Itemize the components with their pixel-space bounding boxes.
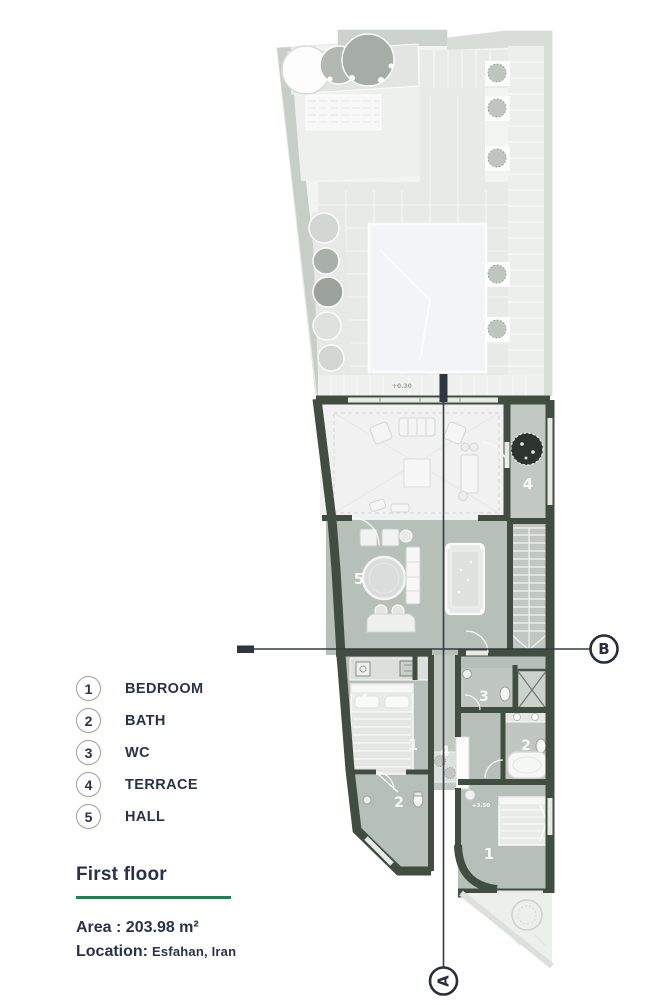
coffee-table xyxy=(404,459,430,487)
tree-icon xyxy=(309,213,339,243)
sink xyxy=(363,796,371,804)
legend-number: 4 xyxy=(76,772,101,797)
legend-item-hall: 5 HALL xyxy=(76,804,204,829)
legend-item-terrace: 4 TERRACE xyxy=(76,772,204,797)
sink xyxy=(356,662,370,676)
legend-label: BEDROOM xyxy=(125,681,204,697)
console-table xyxy=(461,455,478,493)
legend-number: 5 xyxy=(76,804,101,829)
legend-label: WC xyxy=(125,745,150,761)
floor-plan-page: +0.30 xyxy=(0,0,667,1000)
legend-label: HALL xyxy=(125,809,165,825)
legend-label: BATH xyxy=(125,713,166,729)
legend: 1 BEDROOM 2 BATH 3 WC 4 TERRACE 5 HALL xyxy=(76,676,204,829)
tree-icon xyxy=(313,248,339,274)
cabinet xyxy=(406,547,420,604)
vanity xyxy=(505,712,547,722)
kitchen-counter xyxy=(350,658,432,680)
chair xyxy=(360,529,377,546)
tree-icon xyxy=(313,277,343,307)
level-annotation: +0.30 xyxy=(392,383,412,390)
pergola-slab xyxy=(306,95,381,130)
garden-walkway: +0.30 xyxy=(318,375,544,396)
level-annotation: +3.50 xyxy=(472,803,490,809)
page-title: First floor xyxy=(76,864,236,886)
area-value: Area : 203.98 m² xyxy=(76,919,236,937)
sink xyxy=(463,670,472,679)
legend-number: 2 xyxy=(76,708,101,733)
legend-item-wc: 3 WC xyxy=(76,740,204,765)
section-marker-b: B xyxy=(598,640,609,658)
title-underline xyxy=(76,896,231,899)
floor-plan-drawing: +0.30 xyxy=(0,0,667,1000)
room-label-wc: 3 xyxy=(479,689,489,705)
legend-label: TERRACE xyxy=(125,777,198,793)
legend-item-bath: 2 BATH xyxy=(76,708,204,733)
pool xyxy=(369,224,486,372)
location-value: Esfahan, Iran xyxy=(152,944,236,959)
toilet-icon xyxy=(500,687,510,701)
room-label-terrace-balcony: 4 xyxy=(359,692,369,708)
room-label-hall: 5 xyxy=(354,570,364,588)
toilet-icon xyxy=(536,739,546,753)
room-label-bath-left: 2 xyxy=(394,795,404,811)
driveway-triangle xyxy=(461,893,552,966)
legend-item-bedroom: 1 BEDROOM xyxy=(76,676,204,701)
room-label-bedroom-right: 1 xyxy=(484,845,494,863)
billiard-table xyxy=(446,544,484,614)
elevator xyxy=(517,670,547,710)
title-block: First floor Area : 203.98 m² Location: E… xyxy=(76,864,236,961)
location-label: Location: xyxy=(76,943,148,961)
chair xyxy=(382,529,399,546)
room-label-bedroom-left: 1 xyxy=(408,736,418,754)
room-label-terrace-upper: 4 xyxy=(523,475,533,493)
pillow xyxy=(385,696,409,708)
room-label-terrace-mid: 4 xyxy=(440,744,450,760)
terrace-tree xyxy=(511,433,543,465)
tree-icon xyxy=(318,345,344,371)
legend-number: 3 xyxy=(76,740,101,765)
legend-number: 1 xyxy=(76,676,101,701)
tree-icon xyxy=(313,312,341,340)
room-label-bath-right: 2 xyxy=(521,738,531,754)
settee xyxy=(367,614,415,632)
location-line: Location: Esfahan, Iran xyxy=(76,943,236,961)
garden-site: +0.30 xyxy=(277,30,552,396)
section-marker-a: A xyxy=(435,975,453,987)
